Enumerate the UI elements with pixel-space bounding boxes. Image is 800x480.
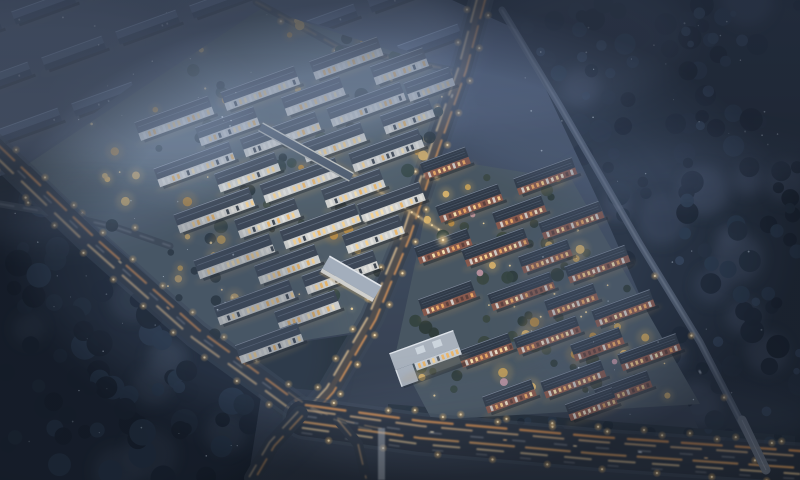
night-aerial-masterplan-render xyxy=(0,0,800,480)
render-canvas xyxy=(0,0,800,480)
atmosphere-overlay xyxy=(0,0,800,480)
